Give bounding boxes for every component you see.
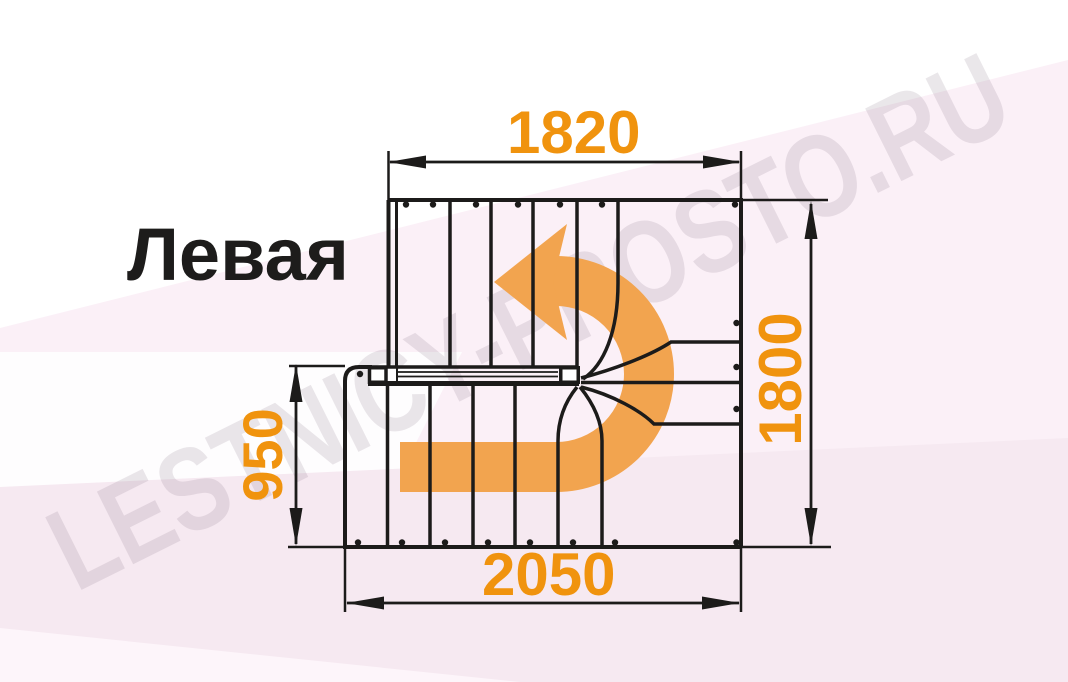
dimension-label-left: 950 [235, 408, 291, 501]
dimension-label-top: 1820 [507, 103, 640, 163]
stair-side-label: Левая [127, 218, 349, 292]
newel-post-left [370, 368, 387, 383]
newel-post-right [561, 368, 579, 383]
dimension-label-bottom: 2050 [482, 545, 615, 605]
landing-strip [368, 367, 579, 384]
turn-direction-arrow [400, 224, 649, 467]
dimension-label-right: 1800 [751, 312, 811, 445]
turn-arrow-body [400, 281, 649, 467]
staircase-drawing-canvas: LESTNICY-PROSTO.RU [0, 0, 1068, 682]
